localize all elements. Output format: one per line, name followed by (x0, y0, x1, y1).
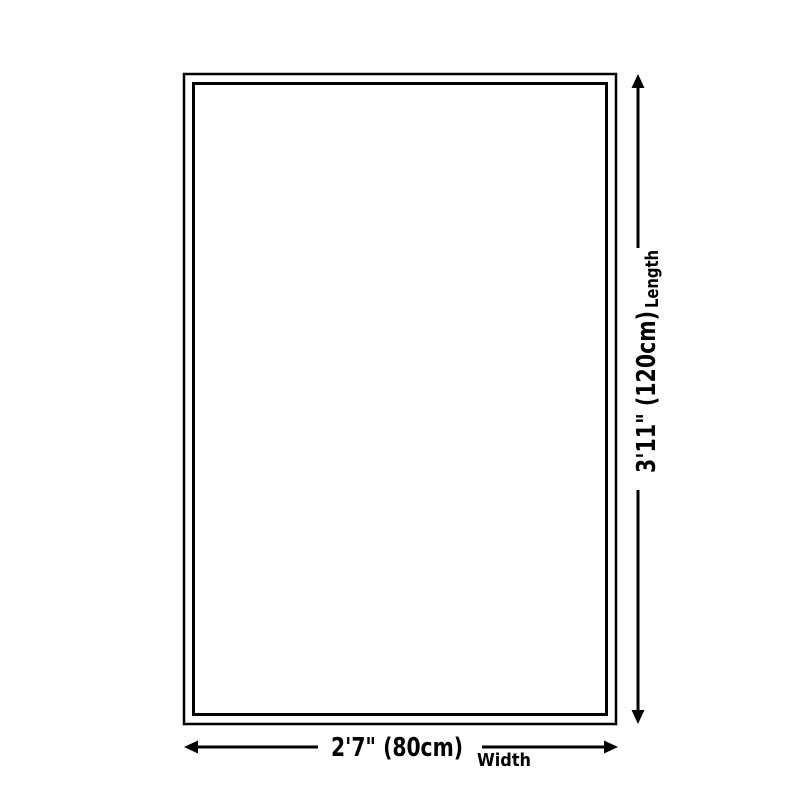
length-value-label: 3'11" (120cm) (632, 311, 662, 473)
dimension-diagram-canvas: 3'11" (120cm) Length 2'7" (80cm) Width (0, 0, 800, 800)
width-value-label: 2'7" (80cm) (331, 733, 463, 763)
length-axis-label: Length (642, 250, 663, 308)
rug-dimension-diagram: 3'11" (120cm) Length 2'7" (80cm) Width (0, 0, 800, 800)
width-axis-label: Width (477, 750, 531, 771)
rug-inner-border (194, 84, 607, 715)
